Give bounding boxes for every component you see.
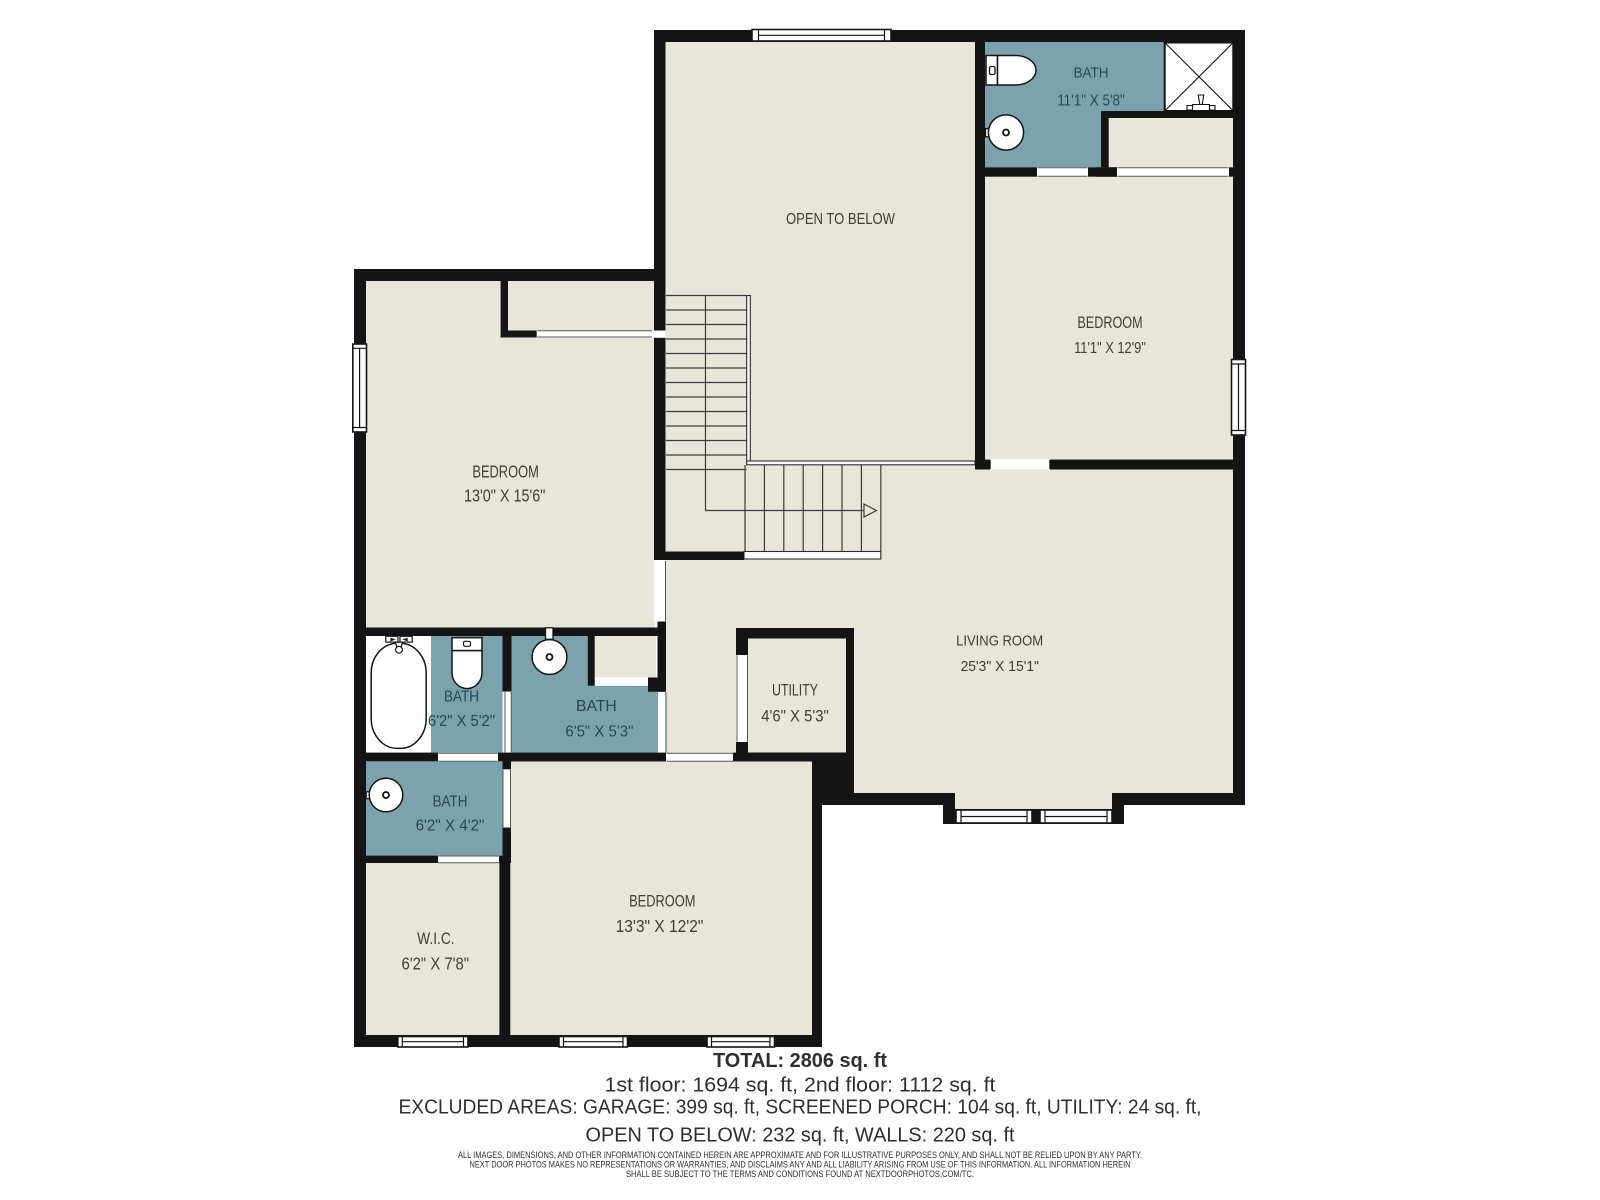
svg-text:SHALL BE SUBJECT TO THE TERMS: SHALL BE SUBJECT TO THE TERMS AND CONDIT… [626, 1169, 974, 1179]
svg-text:BEDROOM: BEDROOM [1077, 314, 1142, 332]
svg-text:EXCLUDED AREAS: GARAGE: 399 sq: EXCLUDED AREAS: GARAGE: 399 sq. ft, SCRE… [399, 1097, 1202, 1119]
svg-text:1st floor: 1694 sq. ft, 2nd fl: 1st floor: 1694 sq. ft, 2nd floor: 1112 … [605, 1075, 996, 1097]
svg-text:BATH: BATH [444, 689, 479, 706]
svg-text:BEDROOM: BEDROOM [629, 891, 695, 910]
svg-text:UTILITY: UTILITY [772, 682, 818, 700]
svg-text:BEDROOM: BEDROOM [472, 461, 538, 481]
svg-text:6'5" X 5'3": 6'5" X 5'3" [565, 724, 633, 741]
svg-text:25'3" X 15'1": 25'3" X 15'1" [961, 659, 1039, 675]
svg-text:BATH: BATH [433, 794, 468, 811]
svg-text:11'1" X 12'9": 11'1" X 12'9" [1074, 340, 1146, 357]
svg-text:BATH: BATH [1074, 65, 1109, 82]
svg-text:TOTAL: 2806 sq. ft: TOTAL: 2806 sq. ft [713, 1050, 887, 1072]
svg-text:NEXT DOOR PHOTOS MAKES NO REPR: NEXT DOOR PHOTOS MAKES NO REPRESENTATION… [470, 1160, 1131, 1170]
svg-text:4'6" X 5'3": 4'6" X 5'3" [761, 708, 829, 726]
svg-text:OPEN TO BELOW: OPEN TO BELOW [786, 211, 895, 228]
svg-text:W.I.C.: W.I.C. [417, 929, 455, 948]
svg-text:11'1" X 5'8": 11'1" X 5'8" [1057, 93, 1125, 110]
svg-text:6'2" X 4'2": 6'2" X 4'2" [416, 818, 485, 835]
svg-text:6'2" X 5'2": 6'2" X 5'2" [428, 713, 495, 730]
svg-text:13'3" X 12'2": 13'3" X 12'2" [616, 916, 704, 936]
svg-text:BATH: BATH [576, 698, 617, 715]
svg-text:OPEN TO BELOW: 232 sq. ft, WAL: OPEN TO BELOW: 232 sq. ft, WALLS: 220 sq… [586, 1125, 1015, 1147]
svg-text:ALL IMAGES, DIMENSIONS, AND OT: ALL IMAGES, DIMENSIONS, AND OTHER INFORM… [458, 1150, 1142, 1160]
svg-text:LIVING ROOM: LIVING ROOM [956, 633, 1043, 650]
svg-text:13'0" X 15'6": 13'0" X 15'6" [464, 486, 545, 506]
svg-text:6'2" X 7'8": 6'2" X 7'8" [402, 953, 470, 973]
